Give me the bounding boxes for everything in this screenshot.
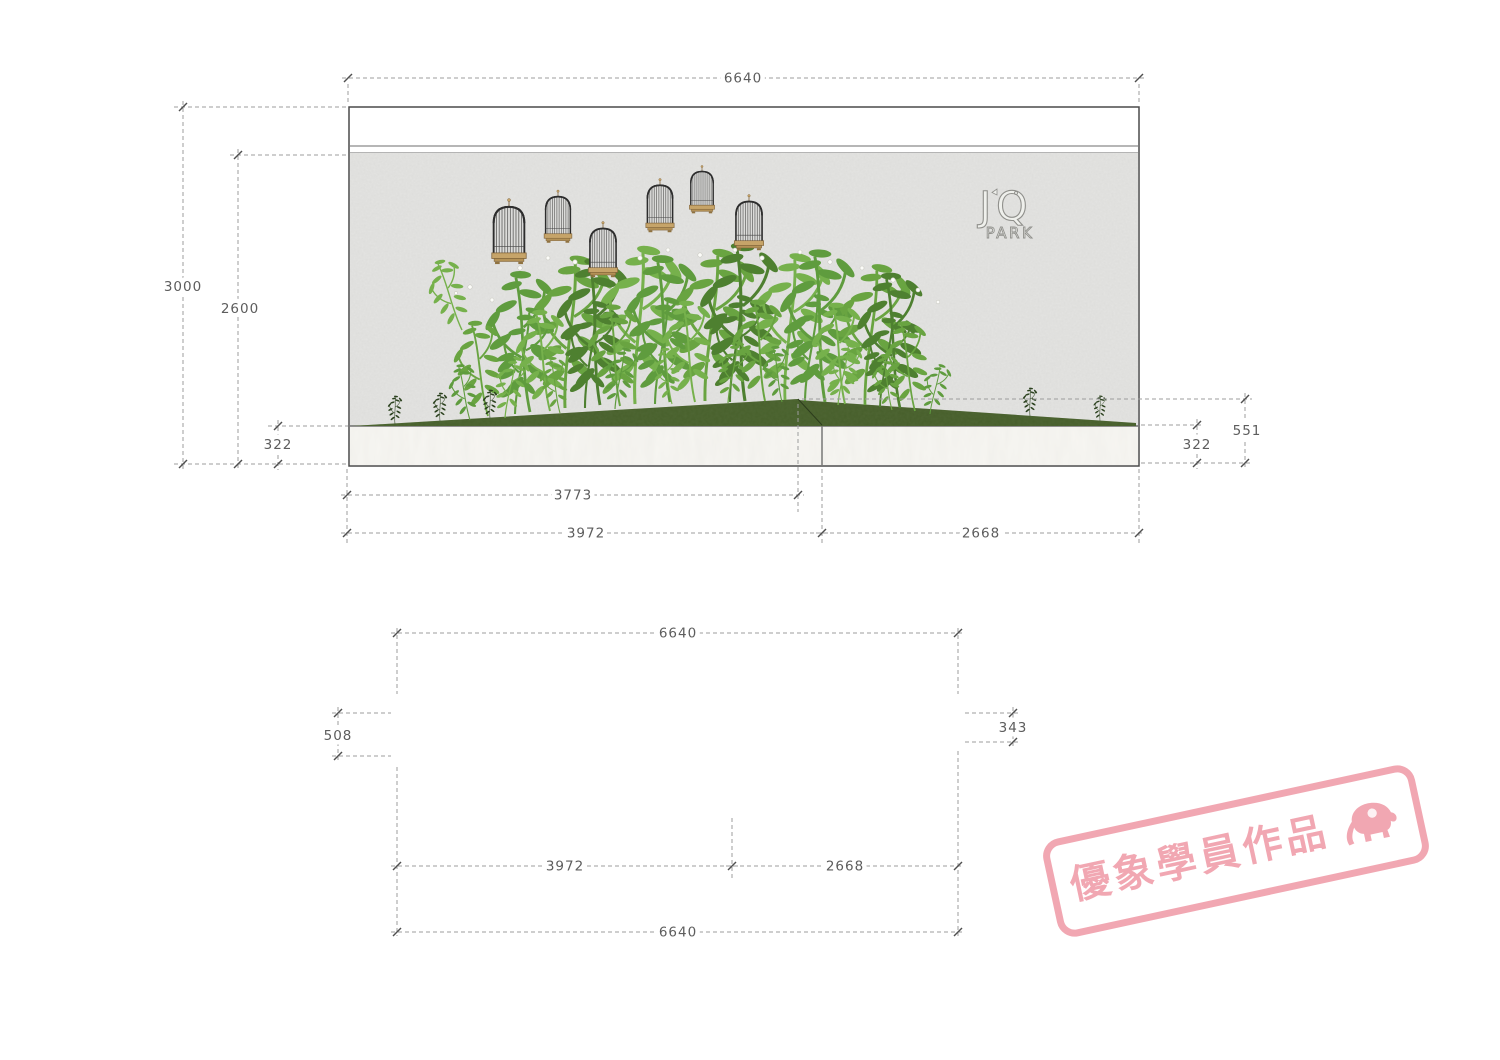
svg-text:2668: 2668 [826, 859, 864, 875]
svg-text:322: 322 [1183, 437, 1212, 453]
dim-plan-total-width-top: 6640 [391, 626, 964, 642]
svg-text:2668: 2668 [962, 526, 1000, 542]
svg-text:343: 343 [999, 720, 1028, 736]
svg-text:3972: 3972 [567, 526, 605, 542]
dim-elev-wall-height: 2600 [221, 149, 259, 470]
jq-park-logo: JQ PARK [976, 184, 1034, 242]
svg-text:6640: 6640 [659, 925, 697, 941]
dim-elev-base-height-right: 322 [1183, 419, 1212, 469]
svg-text:3000: 3000 [164, 279, 202, 295]
dim-elev-left-bay: 3972 [341, 526, 828, 542]
logo-text-park: PARK [986, 224, 1035, 242]
svg-text:3972: 3972 [546, 859, 584, 875]
svg-text:3773: 3773 [554, 488, 592, 504]
dim-elev-total-height: 3000 [164, 101, 202, 470]
svg-text:551: 551 [1233, 423, 1262, 439]
elephant-icon [1335, 791, 1406, 853]
dim-elev-mound-height: 551 [1233, 393, 1262, 469]
svg-text:6640: 6640 [659, 626, 697, 642]
svg-text:508: 508 [324, 728, 353, 744]
dim-elev-right-bay: 2668 [816, 526, 1145, 542]
drawing-canvas: JQ PARK 6640 [0, 0, 1500, 1060]
dim-elev-planter-width: 3773 [341, 488, 804, 504]
dim-plan-right-bay: 2668 [726, 859, 964, 875]
dim-plan-left-bay: 3972 [391, 859, 738, 875]
dim-plan-depth-left: 508 [324, 707, 353, 762]
elevation-view: JQ PARK 6640 [164, 71, 1262, 546]
svg-text:322: 322 [264, 437, 293, 453]
plan-view: 6640 508 343 3972 2668 [324, 626, 1028, 941]
drawing-svg: JQ PARK 6640 [0, 0, 1500, 1060]
svg-text:2600: 2600 [221, 301, 259, 317]
plan-extension-lines [332, 628, 1020, 936]
dim-plan-total-width-bottom: 6640 [391, 925, 964, 941]
svg-text:6640: 6640 [724, 71, 762, 87]
dim-elev-base-height-left: 322 [264, 420, 293, 470]
dim-elev-total-width: 6640 [342, 71, 1145, 87]
